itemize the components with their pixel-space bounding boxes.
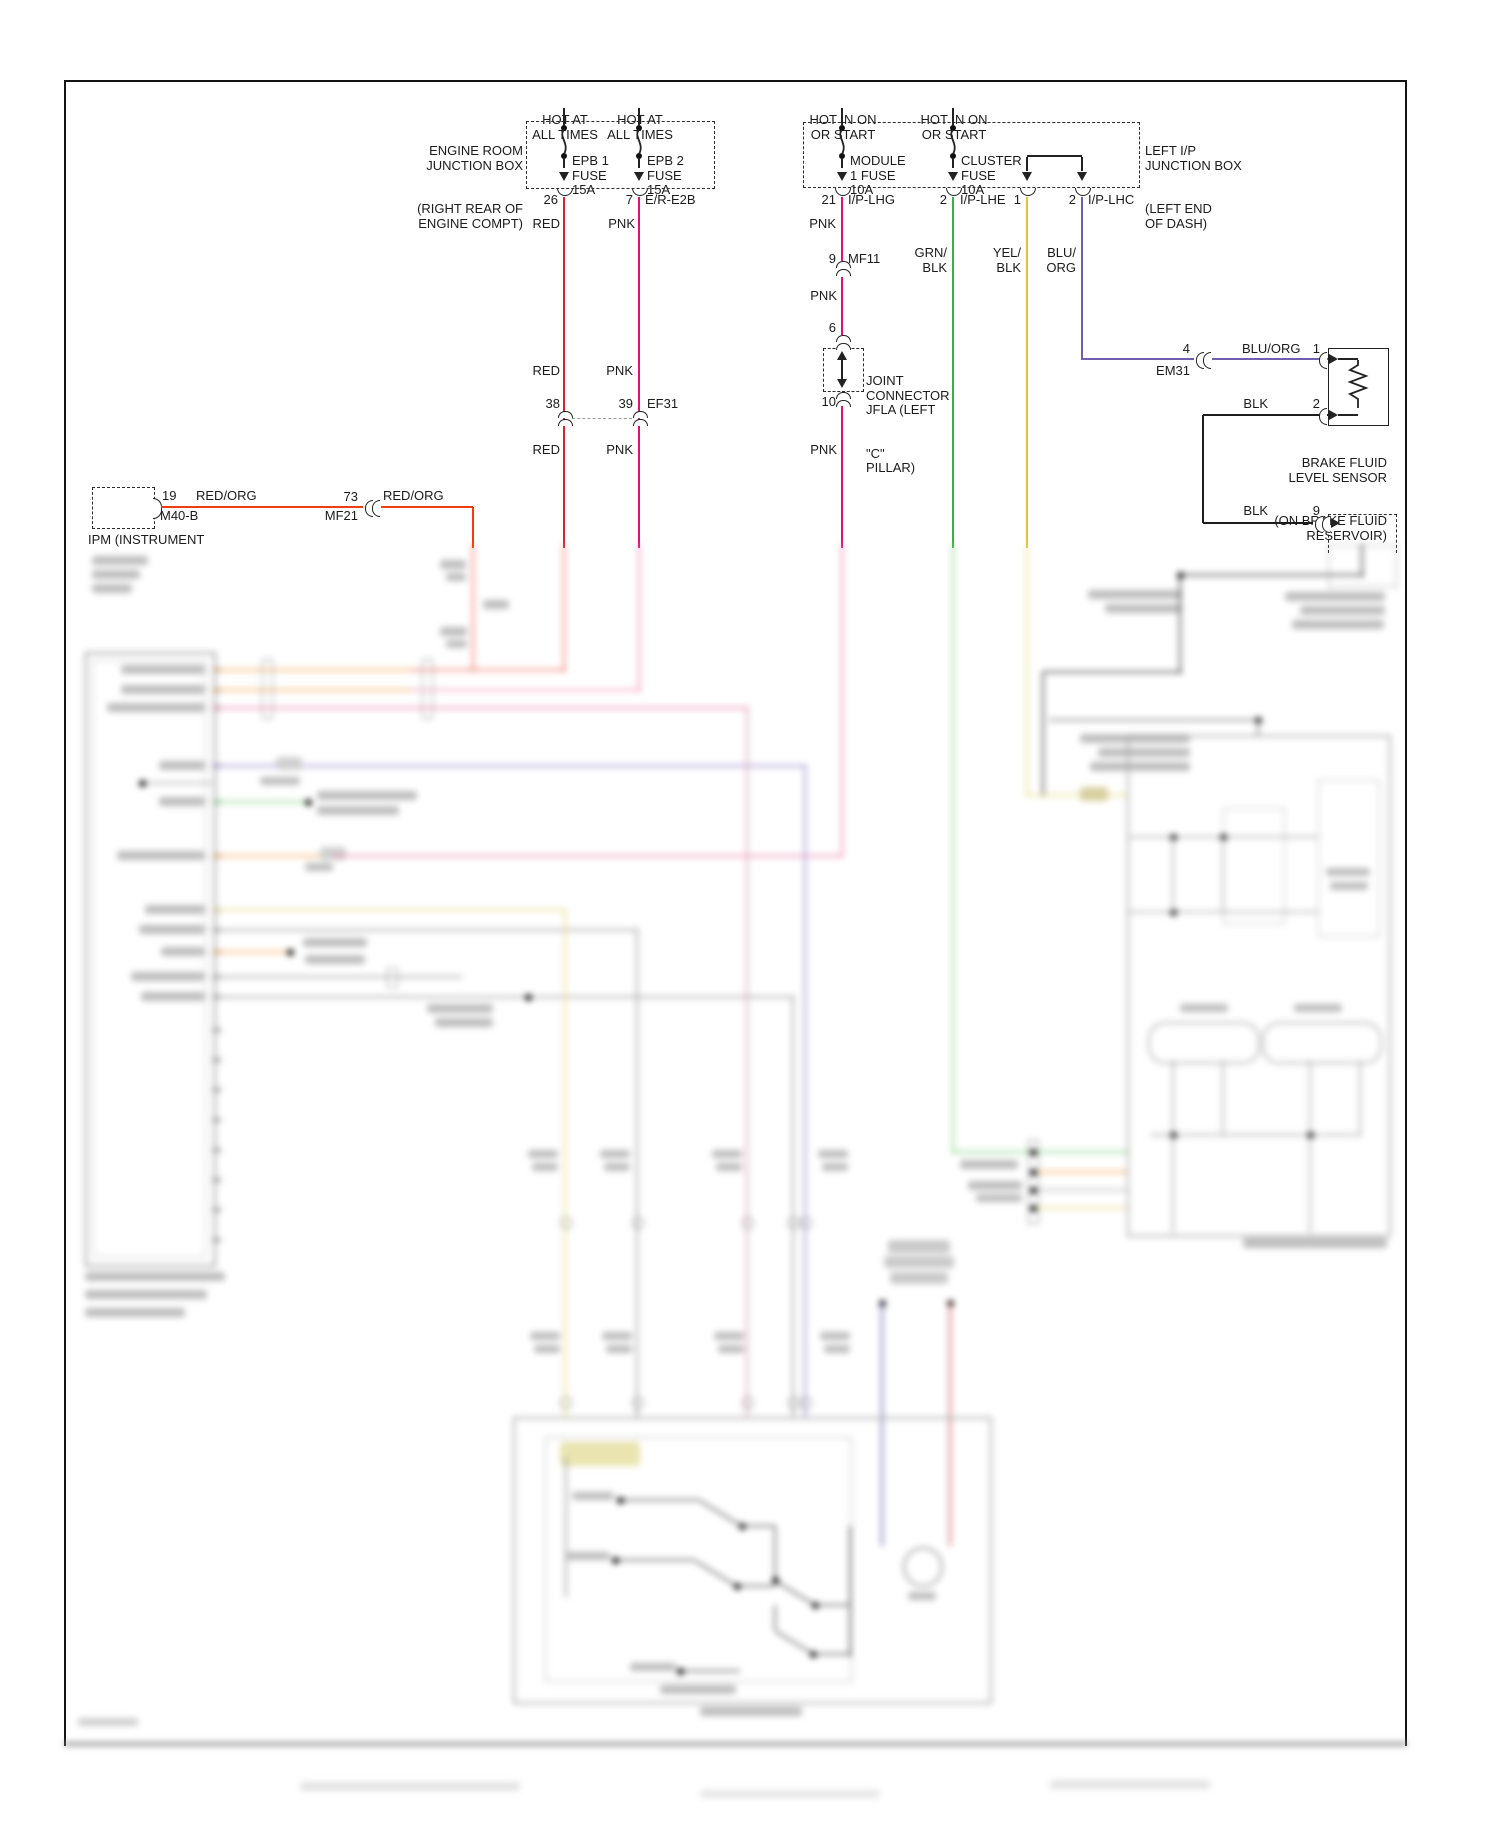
blurred-text-block [446,573,466,581]
blurred-text-block [85,1308,185,1317]
blurred-text-block [890,1272,948,1284]
wire-horizontal [815,1604,850,1606]
blurred-pin [1030,1169,1037,1176]
blurred-text-block [714,1332,744,1340]
wire-vertical [1026,544,1029,797]
blurred-text-block [602,1332,632,1340]
blurred-text-block [960,1160,1018,1169]
blurred-text-block [1088,590,1182,599]
blurred-text-block [1105,604,1182,613]
wiring-diagram-page: HOT ATALL TIMES HOT ATALL TIMES HOT IN O… [0,0,1500,1828]
blurred-text-block [212,1058,221,1062]
blurred-dot [677,1668,684,1675]
wire-horizontal [1037,1151,1127,1154]
blurred-box [262,659,273,719]
blurred-connector [742,1397,754,1409]
wire-horizontal [737,1585,775,1587]
wire-vertical [774,1526,776,1580]
blurred-text-block [884,1256,954,1268]
wire-horizontal [1037,1207,1127,1210]
blurred-text-block [604,1163,630,1171]
blurred-text-block [820,1332,850,1340]
blurred-text-block [145,905,205,914]
blurred-connector [788,1217,800,1229]
blurred-text-block [712,1150,742,1158]
wire-vertical [1179,575,1182,674]
blurred-text-block [446,640,467,648]
wire-vertical [638,544,641,692]
wire-vertical [849,1526,851,1657]
wire-horizontal [1049,719,1260,722]
wire-horizontal [1037,1171,1127,1174]
blurred-text-block [1294,1004,1342,1012]
blurred-text-block [534,1345,560,1353]
blurred-pin [1030,1187,1037,1194]
blurred-text-block [78,1718,138,1726]
blurred-text-block [1292,620,1384,629]
wire-horizontal [680,1670,740,1672]
blurred-text-block [1080,787,1108,801]
blurred-gauge [1262,1022,1382,1064]
wire-vertical [792,997,795,1419]
blurred-text-block [1050,1780,1210,1789]
blurred-connector [788,1397,800,1409]
wire-horizontal [64,1742,1407,1746]
wire-horizontal [620,1499,700,1501]
wire-horizontal [615,1559,695,1561]
blurred-text-block [440,627,467,636]
blurred-box [422,659,433,719]
blurred-dot [139,780,146,787]
blurred-text-block [305,863,333,871]
blurred-text-block [1243,1238,1387,1248]
wire-horizontal [212,689,410,692]
wire-vertical [1172,1060,1174,1135]
blurred-text-block [212,1088,221,1092]
blurred-connector [742,1217,754,1229]
wire-horizontal [1043,671,1182,674]
blurred-box [1223,808,1285,924]
blurred-text-block [888,1240,950,1253]
wire-vertical [565,1457,567,1597]
blurred-connector [632,1397,644,1409]
blurred-text-block [139,925,205,934]
wire-horizontal [212,929,639,932]
blurred-dot [612,1557,619,1564]
blurred-diagram-region [0,0,1500,1828]
wire-horizontal [142,782,212,784]
blurred-text-block [700,1707,802,1716]
blurred-text-block [440,560,466,569]
blurred-text-block [212,1238,221,1242]
blurred-text-block [566,1552,610,1560]
wire-horizontal [1037,1189,1127,1192]
wire-horizontal [212,951,290,954]
blurred-text-block [117,851,205,860]
blurred-text-block [530,1332,560,1340]
blurred-text-block [600,1150,630,1158]
wire-horizontal [953,1151,1033,1154]
blurred-dot [772,1577,779,1584]
wire-vertical [746,708,749,1419]
blurred-text-block [1180,1004,1228,1012]
blurred-text-block [141,992,205,1001]
wire-vertical [774,1605,776,1630]
blurred-dot [525,994,532,1001]
blurred-text-block [303,938,367,947]
wire-horizontal [1180,574,1364,577]
blurred-text-block [159,761,205,770]
blurred-text-block [660,1685,736,1694]
blurred-text-block [85,1290,207,1299]
blurred-text-block [528,1150,558,1158]
blurred-text-block [700,1790,880,1798]
blurred-text-block [305,955,365,964]
blurred-text-block [212,1208,221,1212]
blurred-text-block [121,685,205,694]
wire-horizontal [212,996,795,998]
wire-horizontal [212,801,308,804]
blurred-text-block [212,1148,221,1152]
blurred-text-block [560,1442,640,1466]
wire-vertical [804,766,807,1419]
blurred-text-block [300,1782,520,1791]
blurred-text-block [822,1163,848,1171]
blurred-text-block [320,847,346,860]
blurred-connector [800,1217,812,1229]
wire-vertical [1309,1135,1311,1233]
blurred-dot [305,799,312,806]
blurred-pin [1030,1205,1037,1212]
blurred-box [93,660,206,1257]
blurred-text-block [483,600,509,609]
wire-horizontal [742,1525,775,1527]
blurred-connector [632,1217,644,1229]
blurred-connector [560,1397,572,1409]
blurred-dot [287,949,294,956]
wire-horizontal [410,689,641,692]
blurred-dot [617,1497,624,1504]
blurred-text-block [121,665,205,674]
wire-horizontal [212,707,749,710]
blurred-text-block [1330,882,1368,890]
wire-vertical [841,544,844,858]
wire-horizontal [813,1653,850,1655]
wire-horizontal [212,855,333,858]
blurred-text-block [818,1150,848,1158]
blurred-text-block [718,1345,744,1353]
blurred-text-block [212,1028,221,1032]
wire-horizontal [1027,794,1129,797]
blurred-text-block [572,1492,614,1500]
wire-vertical [1172,1135,1174,1233]
wire-horizontal [333,855,842,858]
wire-vertical [1359,1060,1361,1135]
blurred-text-block [716,1163,742,1171]
blurred-text-block [159,797,205,806]
blurred-text-block [131,972,205,981]
blurred-pin [1030,1149,1037,1156]
blurred-text-block [92,570,140,579]
blurred-text-block [968,1181,1022,1190]
wire-vertical [952,544,955,1154]
blurred-text-block [532,1163,558,1171]
blurred-text-block [85,1272,225,1281]
blurred-text-block [92,584,132,593]
blurred-text-block [107,703,205,712]
blurred-text-block [427,1004,493,1013]
wire-horizontal [212,909,567,912]
blurred-text-block [1300,606,1385,615]
wire-vertical [1172,837,1174,913]
blurred-text-block [276,757,302,770]
wire-vertical [1309,1060,1311,1135]
blurred-box [387,968,398,988]
blurred-box [1328,545,1397,587]
blurred-text-block [212,1178,221,1182]
blurred-connector [800,1397,812,1409]
wire-vertical [564,910,567,1419]
blurred-gauge [1148,1022,1260,1064]
wire-vertical [636,930,639,1419]
blurred-text-block [1326,868,1370,876]
wire-vertical [563,544,566,672]
blurred-text-block [212,1118,221,1122]
blurred-text-block [824,1345,850,1353]
wire-horizontal [410,669,566,672]
blurred-text-block [976,1194,1022,1202]
blurred-box [1318,780,1380,937]
blurred-text-block [92,556,148,565]
wire-vertical [472,544,475,672]
wire-horizontal [1150,1134,1362,1136]
blurred-text-block [1285,592,1385,601]
wire-vertical [1222,837,1224,913]
wire-horizontal [212,669,410,672]
wire-vertical [1042,672,1045,797]
blurred-text-block [260,777,300,785]
wire-vertical [1222,1060,1224,1135]
blurred-text-block [317,806,399,815]
wire-horizontal [212,976,462,978]
blurred-text-block [317,791,417,800]
blurred-connector [560,1217,572,1229]
blurred-text-block [606,1345,632,1353]
blurred-text-block [161,947,205,956]
blurred-text-block [435,1018,493,1027]
blurred-text-block [630,1663,676,1671]
